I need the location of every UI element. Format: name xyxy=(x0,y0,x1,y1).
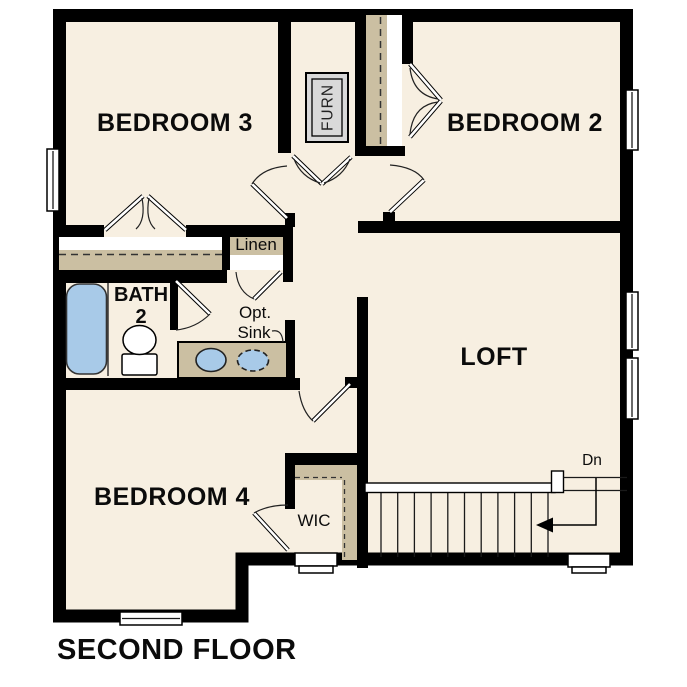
stair-rail xyxy=(365,483,555,493)
floor-plan-canvas: FURN xyxy=(0,0,687,687)
furnace-unit: FURN xyxy=(306,73,348,142)
linen-closet-floor xyxy=(230,255,283,270)
window-bedroom2-right xyxy=(626,90,638,150)
window-loft-right-lower xyxy=(626,358,638,419)
bedroom3-label: BEDROOM 3 xyxy=(97,109,253,137)
toilet xyxy=(122,326,157,376)
window-wic-bottom xyxy=(295,553,337,573)
wic-label: WIC xyxy=(297,511,330,530)
window-loft-right-upper xyxy=(626,292,638,350)
opt-sink-label-line1: Opt. xyxy=(239,303,271,322)
optional-sink xyxy=(238,350,269,371)
bathtub xyxy=(67,284,107,374)
bedroom2-closet-shelf xyxy=(366,15,387,146)
window-stairs-bottom xyxy=(568,554,610,573)
bath-label-line2: 2 xyxy=(135,306,146,328)
bedroom3-closet-floor xyxy=(59,237,227,250)
bedroom3-closet-shelf xyxy=(59,250,227,270)
furnace-label: FURN xyxy=(320,84,337,131)
loft-label: LOFT xyxy=(460,343,527,371)
sink xyxy=(196,349,226,372)
floor-plan-page: FURN xyxy=(0,0,687,687)
window-bedroom4-bottom xyxy=(120,612,182,625)
linen-label: Linen xyxy=(235,235,277,254)
opt-sink-label-line2: Sink xyxy=(237,323,271,342)
stair-newel-post xyxy=(552,471,564,493)
bedroom2-label: BEDROOM 2 xyxy=(447,109,603,137)
bedroom2-closet-floor xyxy=(387,15,402,146)
bath-label-line1: BATH xyxy=(114,284,168,306)
window-bedroom3-left xyxy=(47,149,59,211)
bedroom4-label: BEDROOM 4 xyxy=(94,483,250,511)
down-label: Dn xyxy=(582,452,602,469)
page-title: SECOND FLOOR xyxy=(57,634,297,666)
vanity-counter xyxy=(178,342,287,378)
